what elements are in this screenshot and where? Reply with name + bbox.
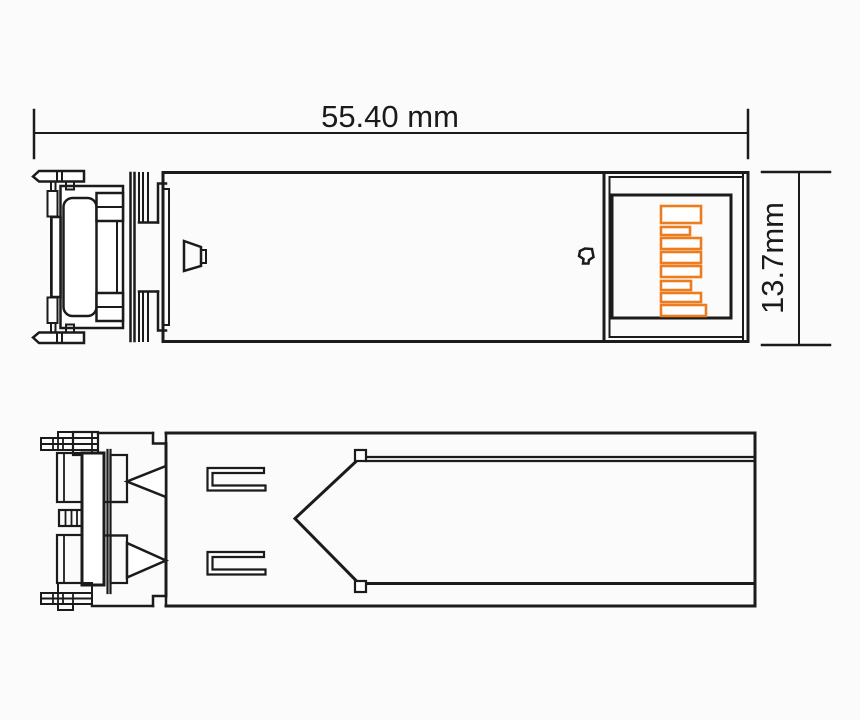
contact-pad	[661, 252, 701, 263]
height-dimension: 13.7mm	[755, 172, 830, 345]
body-bottom-notch	[153, 596, 166, 606]
bail-latch-assembly	[33, 171, 166, 343]
port-block-lower	[111, 536, 128, 584]
latch-boss-tab	[201, 250, 206, 263]
gold-finger-pads	[661, 206, 706, 316]
body-outline	[166, 433, 755, 606]
c-channel-slots	[208, 468, 266, 575]
contact-pad	[661, 293, 701, 302]
lc-connector-assembly	[41, 432, 166, 610]
contact-pad	[661, 281, 691, 290]
slide-rail-lines	[366, 457, 756, 461]
bottom-cap-block	[58, 604, 73, 610]
chevron-bottom-stud	[355, 581, 366, 592]
latch-boss	[184, 241, 201, 271]
latch-slot	[64, 198, 97, 316]
chevron-top-stud	[355, 450, 366, 461]
emi-rail-lines	[131, 173, 135, 341]
top-view	[33, 171, 748, 343]
arrow-left-marker	[127, 466, 166, 497]
contact-pad-window	[604, 173, 743, 342]
bottom-view	[41, 432, 755, 610]
chevron-lines	[295, 461, 357, 581]
contact-pad	[661, 266, 701, 277]
bail-bar	[33, 171, 84, 182]
port-block-upper	[111, 455, 128, 502]
width-dimension-label: 55.40 mm	[321, 99, 459, 134]
upper-c-slot	[208, 468, 266, 491]
arrow-right-marker	[127, 543, 166, 578]
body-top-notch	[153, 433, 166, 444]
rail-tick-lines	[139, 173, 148, 223]
left-block-upper	[57, 453, 82, 502]
contact-pad	[661, 206, 701, 223]
bottom-view-body	[153, 433, 755, 606]
ferrule-housing	[82, 453, 104, 585]
contact-pad	[661, 238, 701, 249]
bail-pivot-bar	[52, 217, 61, 297]
mold-mark	[579, 249, 594, 264]
latch-lower-half	[33, 292, 166, 344]
latch-upper-half	[33, 171, 166, 223]
height-dimension-label: 13.7mm	[755, 202, 790, 314]
left-block-lower	[57, 535, 82, 583]
lower-c-slot	[208, 552, 266, 575]
keying-block-ticks	[66, 510, 78, 526]
technical-drawing-page: 55.40 mm	[0, 0, 860, 720]
sfp-transceiver-outline-drawing: 55.40 mm	[0, 0, 860, 720]
bail-arm-pad	[48, 191, 58, 217]
contact-pad	[661, 305, 706, 316]
slide-latch-chevron	[295, 450, 366, 592]
width-dimension: 55.40 mm	[34, 99, 748, 158]
contact-pad	[661, 227, 690, 235]
top-bar-2	[41, 444, 98, 450]
